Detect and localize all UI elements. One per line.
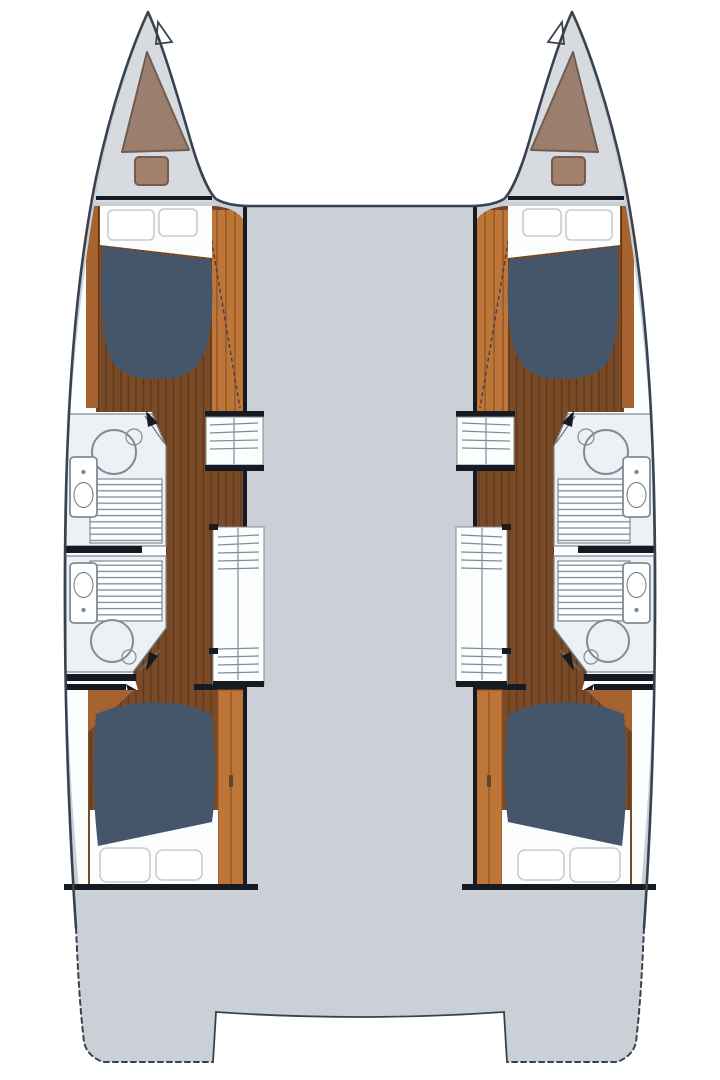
floor-plan-page <box>0 0 720 1080</box>
transom-notch-edge <box>213 1012 507 1062</box>
port-hull <box>62 16 264 890</box>
starboard-hull <box>456 16 658 890</box>
catamaran-floor-plan <box>0 0 720 1080</box>
